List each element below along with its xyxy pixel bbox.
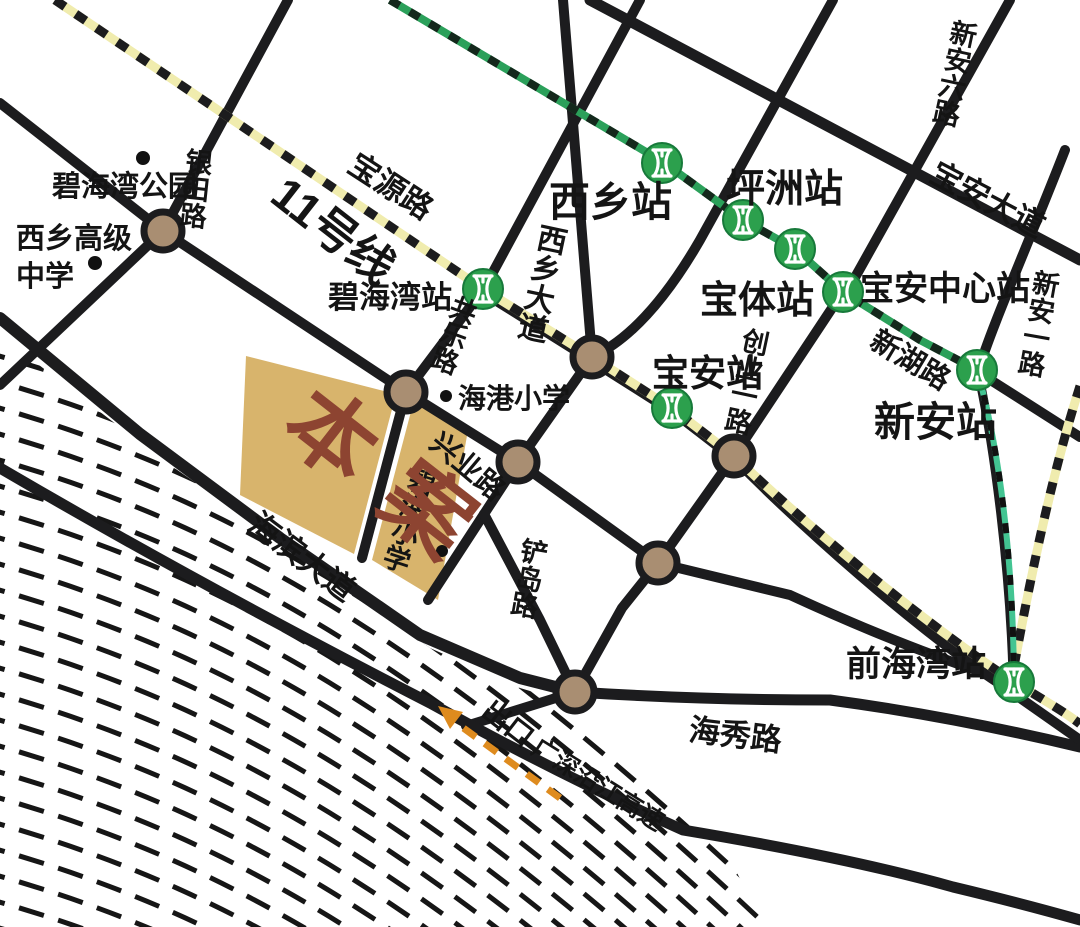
station-icon-baoti [775,229,815,269]
node-xingye [499,443,537,481]
label-station-qianhaiwan: 前海湾站 [846,644,986,684]
station-icon-xixiang [642,143,682,183]
label-road-haixiu: 海秀路 [687,712,785,758]
label-bihaiwan-park: 碧海湾公园 [51,169,197,203]
label-station-baoan-center: 宝安中心站 [860,270,1030,308]
label-station-bihaiwan: 碧海湾站 [328,280,452,315]
node-haixiu [556,673,594,711]
station-icon-baoan [652,388,692,428]
label-road-xixiang-avenue: 西乡大道 [511,221,570,347]
map-canvas: 碧海湾公园 西乡高级 中学 银田路 11号线 宝源路 碧海湾站 西乡站 坪洲站 … [0,0,1080,927]
station-icon-qianhaiwan [994,662,1034,702]
label-road-baoan-avenue: 宝安大道 [925,155,1051,244]
station-icon-baoan-center [823,272,863,312]
label-road-yintian: 银田路 [175,146,214,230]
label-station-baoti: 宝体站 [700,280,814,322]
road-expressway-line [0,468,1080,920]
school-dot [88,256,102,270]
label-station-xinan: 新安站 [874,399,997,445]
node-xixiang-avenue [573,338,611,376]
label-station-pingzhou: 坪洲站 [726,168,843,211]
location-map: 碧海湾公园 西乡高级 中学 银田路 11号线 宝源路 碧海湾站 西乡站 坪洲站 … [0,0,1080,927]
park-dot [136,151,150,165]
label-xixiang-high-school-2: 中学 [16,259,74,293]
node-project-nw [387,373,425,411]
label-xixiang-high-school-1: 西乡高级 [16,222,132,255]
node-chuangye [715,437,753,475]
node-chandao [639,544,677,582]
label-station-xixiang: 西乡站 [549,179,672,225]
haigang-primary-dot [440,390,452,402]
station-icon-xinan [957,350,997,390]
label-road-chandao: 铲岛路 [505,535,549,620]
label-haigang-primary: 海港小学 [458,382,570,414]
